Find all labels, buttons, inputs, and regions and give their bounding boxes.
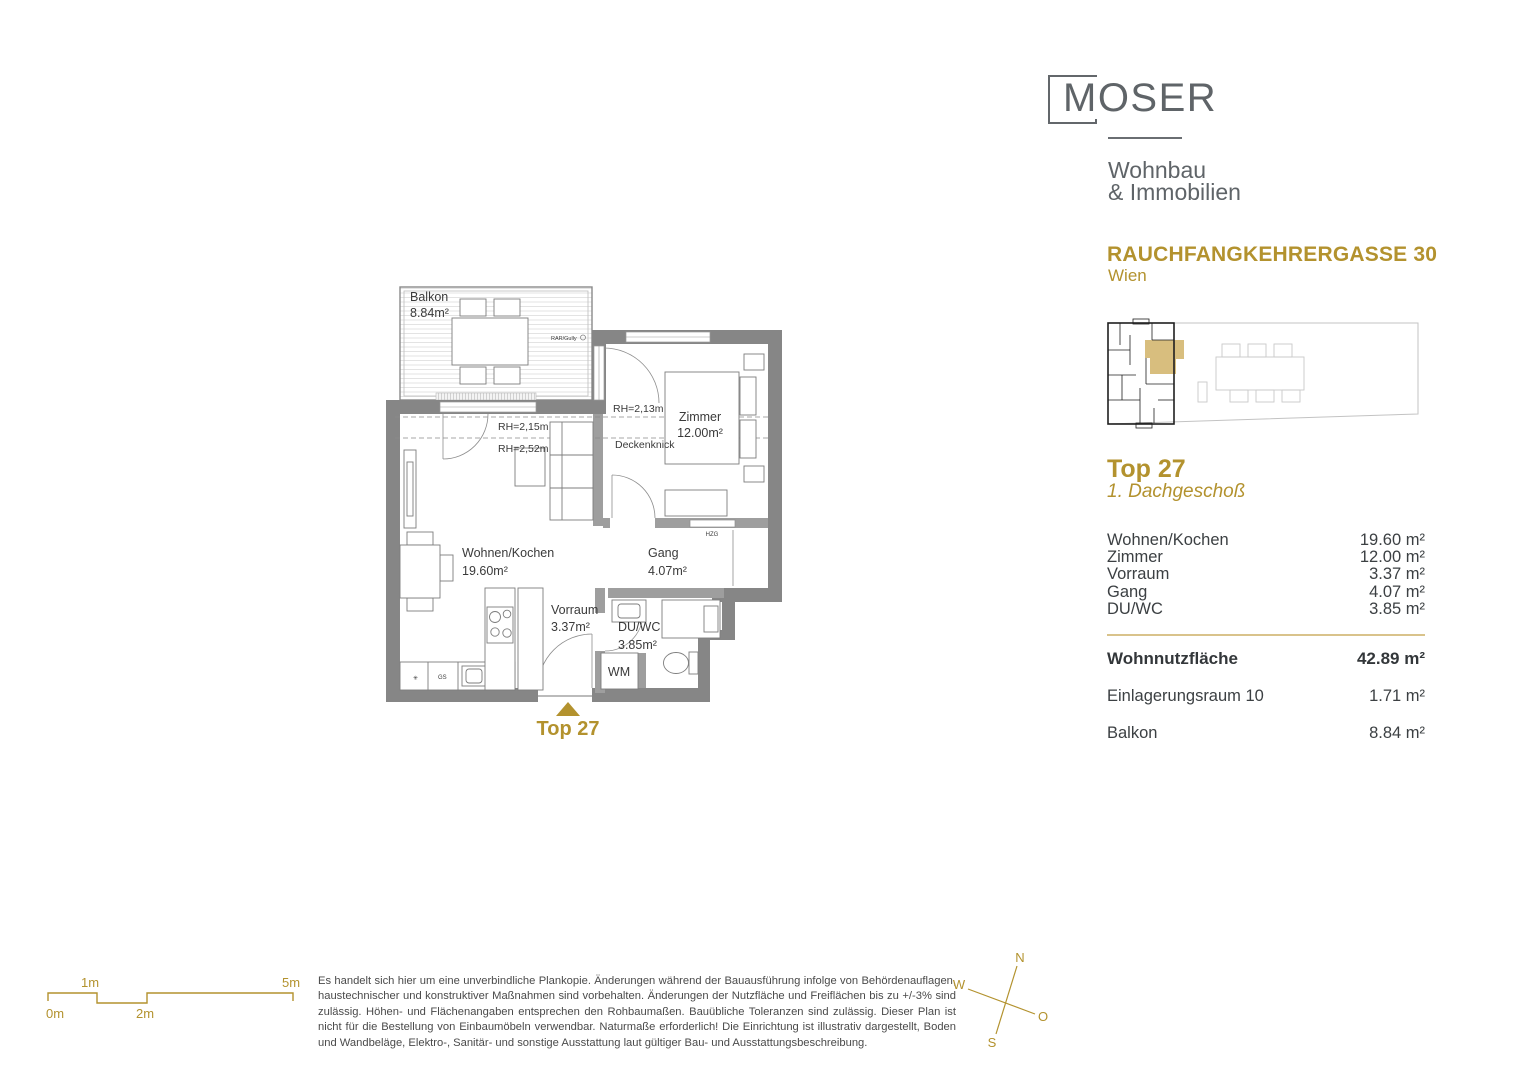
total-row: Wohnnutzfläche 42.89 m² — [1107, 649, 1425, 669]
extra-row: Balkon 8.84 m² — [1107, 724, 1425, 743]
row-value: 4.07 m² — [1369, 584, 1425, 601]
duwc-area: 3.85m² — [618, 638, 657, 652]
duwc-label: DU/WC — [618, 620, 660, 634]
scale-0m: 0m — [46, 1006, 64, 1021]
disclaimer-text: Es handelt sich hier um eine unverbindli… — [318, 974, 956, 1051]
rh252-label: RH=2,52m — [498, 443, 549, 455]
extra-value: 8.84 m² — [1369, 724, 1425, 743]
dishwasher-label: GS — [438, 675, 447, 681]
balcony-label: Balkon — [410, 290, 448, 304]
zimmer-area: 12.00m² — [677, 426, 723, 440]
row-label: DU/WC — [1107, 601, 1163, 618]
compass-n: N — [1015, 950, 1024, 965]
project-street: RAUCHFANGKEHRERGASSE 30 — [1107, 243, 1437, 267]
compass-icon: N W O S — [945, 945, 1060, 1075]
table-divider — [1107, 634, 1425, 636]
unit-floor: 1. Dachgeschoß — [1107, 481, 1245, 503]
scale-1m: 1m — [81, 975, 99, 990]
gang-area: 4.07m² — [648, 564, 687, 578]
table-row: DU/WC 3.85 m² — [1107, 601, 1425, 618]
wohnen-area: 19.60m² — [462, 564, 508, 578]
entrance-label: Top 27 — [537, 718, 600, 740]
row-value: 19.60 m² — [1360, 532, 1425, 549]
fridge-icon: ✳ — [413, 675, 418, 682]
scale-5m: 5m — [282, 975, 300, 990]
neighbour-building — [1198, 344, 1304, 402]
gang-fixtures: HZG — [690, 520, 735, 586]
scale-2m: 2m — [136, 1006, 154, 1021]
table-row: Gang 4.07 m² — [1107, 584, 1425, 601]
extra-label: Einlagerungsraum 10 — [1107, 687, 1264, 706]
row-value: 3.37 m² — [1369, 566, 1425, 583]
balcony: Balkon 8.84m² RAR/Gully — [400, 287, 592, 400]
brand-subtitle-line2: & Immobilien — [1108, 181, 1241, 203]
rh215-label: RH=2,15m — [498, 421, 549, 433]
gully-label: RAR/Gully — [551, 336, 577, 342]
site-plan — [1103, 315, 1429, 429]
wohnen-label: Wohnen/Kochen — [462, 546, 554, 560]
wm-label: WM — [608, 665, 630, 679]
hzg-label: HZG — [706, 532, 719, 538]
total-label: Wohnnutzfläche — [1107, 649, 1238, 669]
table-row: Zimmer 12.00 m² — [1107, 549, 1425, 566]
logo-text: MOSER — [1063, 77, 1223, 119]
total-value: 42.89 m² — [1357, 649, 1425, 669]
compass-o: O — [1038, 1009, 1048, 1024]
logo-divider — [1108, 137, 1182, 139]
vorraum-label: Vorraum — [551, 603, 598, 617]
brand-subtitle-line1: Wohnbau — [1108, 159, 1241, 181]
row-label: Gang — [1107, 584, 1147, 601]
unit-name: Top 27 — [1107, 455, 1186, 484]
deckenknick-label: Deckenknick — [615, 439, 675, 451]
zimmer-label: Zimmer — [679, 410, 721, 424]
extra-label: Balkon — [1107, 724, 1157, 743]
project-city: Wien — [1108, 266, 1147, 286]
brand-subtitle: Wohnbau & Immobilien — [1108, 159, 1241, 203]
floor-plan: Balkon 8.84m² RAR/Gully — [378, 263, 822, 743]
extra-value: 1.71 m² — [1369, 687, 1425, 706]
plan-sheet: Balkon 8.84m² RAR/Gully — [0, 0, 1527, 1080]
row-label: Wohnen/Kochen — [1107, 532, 1229, 549]
row-value: 12.00 m² — [1360, 549, 1425, 566]
rh213-label: RH=2,13m — [613, 403, 664, 415]
living-furniture — [400, 422, 593, 611]
gang-label: Gang — [648, 546, 679, 560]
balcony-area: 8.84m² — [410, 306, 449, 320]
row-label: Zimmer — [1107, 549, 1163, 566]
radiator — [690, 520, 735, 527]
row-label: Vorraum — [1107, 566, 1169, 583]
vorraum-area: 3.37m² — [551, 620, 590, 634]
table-row: Vorraum 3.37 m² — [1107, 566, 1425, 583]
row-value: 3.85 m² — [1369, 601, 1425, 618]
area-table: Wohnen/Kochen 19.60 m² Zimmer 12.00 m² V… — [1107, 532, 1425, 618]
compass-s: S — [988, 1035, 997, 1050]
entrance-marker-icon — [556, 702, 580, 716]
scale-bar-line — [48, 993, 293, 1003]
compass-w: W — [953, 977, 966, 992]
table-row: Wohnen/Kochen 19.60 m² — [1107, 532, 1425, 549]
extra-row: Einlagerungsraum 10 1.71 m² — [1107, 687, 1425, 706]
balcony-threshold — [436, 393, 536, 400]
scale-bar: 1m 5m 0m 2m — [38, 968, 312, 1026]
entrance-marker: Top 27 — [537, 702, 600, 740]
highlighted-unit — [1145, 340, 1184, 374]
